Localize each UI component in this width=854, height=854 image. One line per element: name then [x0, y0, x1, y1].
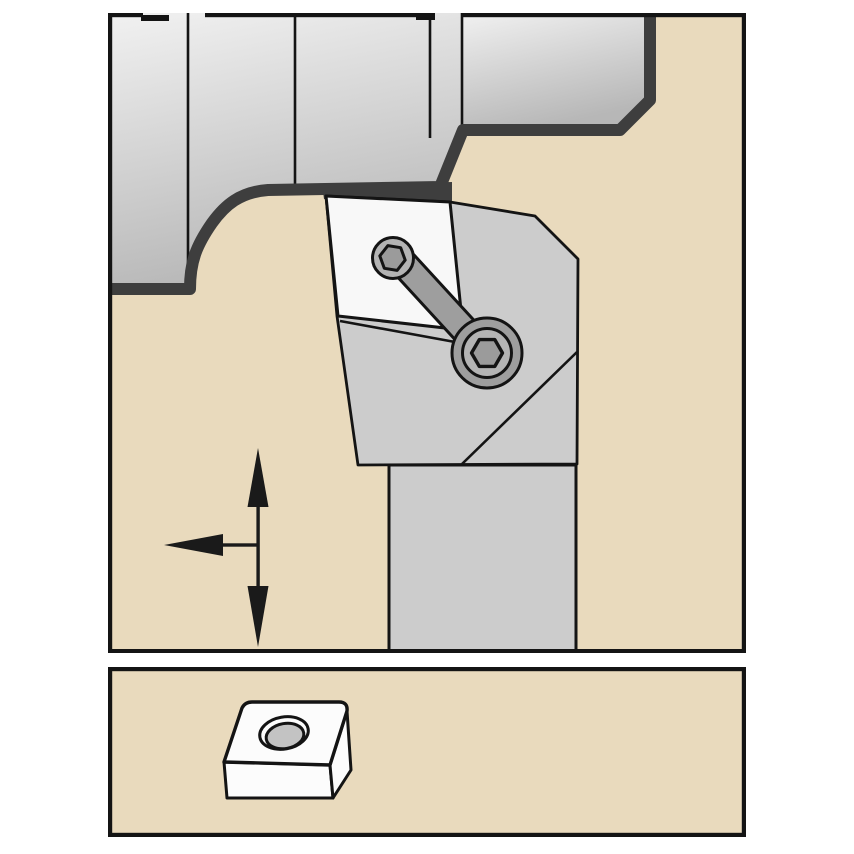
frame-right	[742, 667, 746, 837]
indexable-insert	[224, 702, 351, 798]
frame-bottom	[108, 649, 746, 653]
top-panel-holder-in-cut	[108, 13, 746, 653]
insert-drawing	[108, 667, 746, 837]
bottom-panel-insert	[108, 667, 746, 837]
panel-background	[108, 667, 746, 837]
insert-front-face	[224, 762, 333, 798]
holder-shank	[389, 465, 576, 651]
workpiece-right-block	[462, 13, 649, 131]
frame-top-segment	[462, 13, 746, 17]
frame-right	[742, 13, 746, 653]
holder-in-cut-drawing	[108, 13, 746, 653]
horizontal-feed-shaft	[222, 543, 259, 546]
frame-top-segment	[205, 13, 433, 17]
frame-top-segment	[108, 13, 143, 17]
illustration-stage	[0, 0, 854, 854]
frame-bottom	[108, 833, 746, 837]
frame-left	[108, 667, 112, 837]
lower-screw-hex-socket-icon	[472, 340, 503, 367]
frame-left	[108, 13, 112, 653]
upper-screw-hex-socket-icon	[380, 246, 405, 271]
workpiece-step-notch	[141, 15, 169, 21]
frame-top	[108, 667, 746, 671]
